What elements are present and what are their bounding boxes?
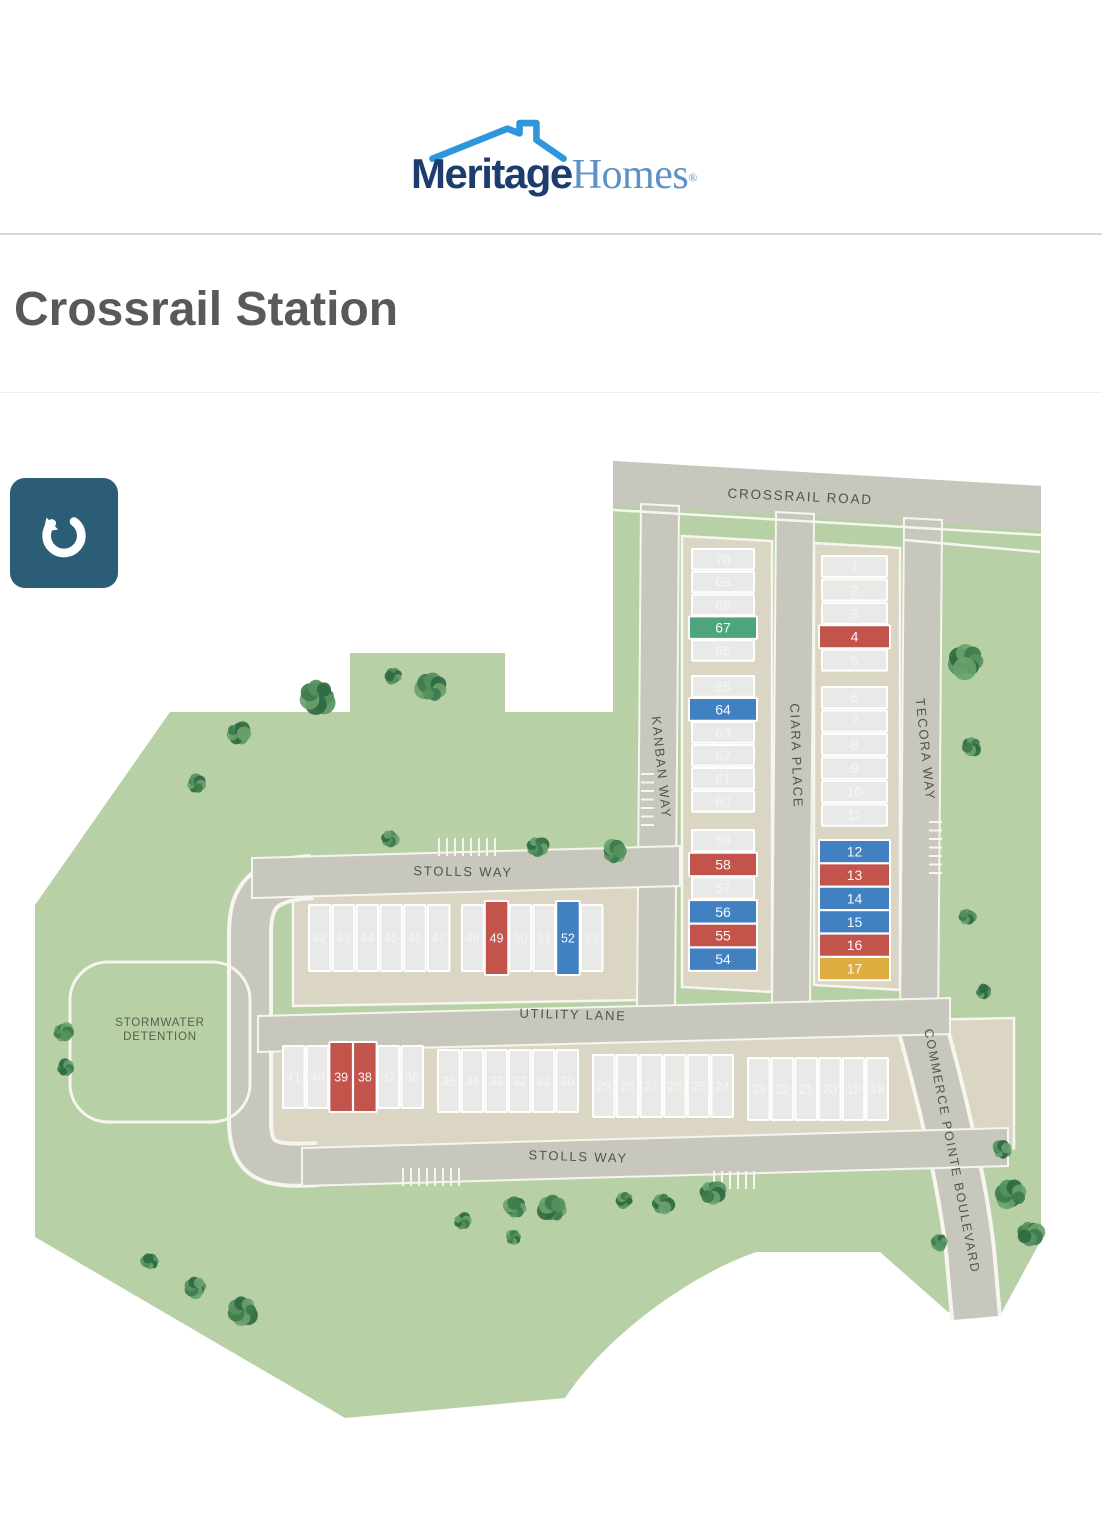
lot-number: 23 xyxy=(752,1083,766,1097)
lot-number: 36 xyxy=(405,1071,419,1085)
lot-58[interactable]: 58 xyxy=(689,853,757,876)
lot-20[interactable]: 20 xyxy=(819,1058,841,1120)
lot-number: 55 xyxy=(715,928,731,944)
lot-number: 24 xyxy=(715,1080,729,1094)
lot-number: 11 xyxy=(847,807,862,823)
lot-number: 53 xyxy=(585,932,599,946)
lot-number: 20 xyxy=(823,1083,837,1097)
lot-number: 52 xyxy=(561,932,575,946)
tree xyxy=(300,680,336,715)
lot-number: 62 xyxy=(715,747,731,763)
lot-44[interactable]: 44 xyxy=(357,905,379,971)
lot-number: 8 xyxy=(851,737,859,753)
lot-number: 31 xyxy=(537,1075,551,1089)
lot-65[interactable]: 65 xyxy=(692,676,754,697)
lot-64[interactable]: 64 xyxy=(689,698,757,721)
lot-number: 4 xyxy=(851,629,859,645)
lot-number: 17 xyxy=(847,961,863,977)
lot-number: 1 xyxy=(851,559,859,575)
lot-16[interactable]: 16 xyxy=(819,934,890,957)
lot-number: 49 xyxy=(490,932,504,946)
lot-53[interactable]: 53 xyxy=(581,905,603,971)
lot-number: 35 xyxy=(442,1075,456,1089)
site-plan-map: 7069686766656463626160595857565554123456… xyxy=(0,0,1102,1536)
lot-number: 22 xyxy=(775,1083,789,1097)
lot-51[interactable]: 51 xyxy=(533,905,555,971)
lot-number: 40 xyxy=(310,1071,324,1085)
lot-number: 37 xyxy=(382,1071,396,1085)
lot-68[interactable]: 68 xyxy=(692,595,754,616)
lot-15[interactable]: 15 xyxy=(819,910,890,933)
lot-number: 54 xyxy=(715,951,731,967)
lot-17[interactable]: 17 xyxy=(819,957,890,980)
lot-49[interactable]: 49 xyxy=(485,901,509,975)
lot-number: 67 xyxy=(715,620,731,636)
lot-6[interactable]: 6 xyxy=(822,687,887,708)
lot-number: 19 xyxy=(847,1083,861,1097)
lot-5[interactable]: 5 xyxy=(822,650,887,671)
lot-number: 69 xyxy=(715,574,731,590)
lot-10[interactable]: 10 xyxy=(822,781,887,802)
lot-4[interactable]: 4 xyxy=(819,625,890,648)
lot-number: 30 xyxy=(560,1075,574,1089)
lot-26[interactable]: 26 xyxy=(664,1055,686,1117)
lot-number: 59 xyxy=(715,833,731,849)
lot-31[interactable]: 31 xyxy=(533,1050,555,1112)
page: MeritageHomes® Crossrail Station xyxy=(0,0,1102,1536)
lot-12[interactable]: 12 xyxy=(819,840,890,863)
lot-number: 60 xyxy=(715,793,731,809)
lot-number: 7 xyxy=(851,713,859,729)
lot-number: 6 xyxy=(851,690,859,706)
lot-41[interactable]: 41 xyxy=(283,1046,305,1108)
lot-30[interactable]: 30 xyxy=(557,1050,579,1112)
lot-number: 48 xyxy=(466,932,480,946)
rotate-ccw-icon xyxy=(32,501,96,565)
lot-number: 41 xyxy=(287,1071,301,1085)
lot-70[interactable]: 70 xyxy=(692,549,754,570)
lot-60[interactable]: 60 xyxy=(692,791,754,812)
lot-27[interactable]: 27 xyxy=(640,1055,662,1117)
lot-number: 16 xyxy=(847,937,863,953)
lot-42[interactable]: 42 xyxy=(309,905,331,971)
lot-22[interactable]: 22 xyxy=(772,1058,794,1120)
lot-number: 27 xyxy=(644,1080,658,1094)
lot-24[interactable]: 24 xyxy=(712,1055,734,1117)
lot-67[interactable]: 67 xyxy=(689,616,757,639)
lot-34[interactable]: 34 xyxy=(462,1050,484,1112)
lot-number: 64 xyxy=(715,701,731,717)
lot-number: 15 xyxy=(847,914,863,930)
lot-25[interactable]: 25 xyxy=(688,1055,710,1117)
lot-number: 26 xyxy=(668,1080,682,1094)
lot-23[interactable]: 23 xyxy=(748,1058,770,1120)
lot-number: 68 xyxy=(715,597,731,613)
lot-number: 14 xyxy=(847,890,863,906)
lot-36[interactable]: 36 xyxy=(402,1046,424,1108)
lot-number: 32 xyxy=(513,1075,527,1089)
lot-47[interactable]: 47 xyxy=(428,905,450,971)
lot-number: 13 xyxy=(847,867,863,883)
lot-46[interactable]: 46 xyxy=(404,905,426,971)
lot-number: 34 xyxy=(465,1075,479,1089)
lot-14[interactable]: 14 xyxy=(819,887,890,910)
lot-number: 47 xyxy=(432,932,446,946)
lot-number: 2 xyxy=(851,582,859,598)
lot-number: 61 xyxy=(715,770,731,786)
lot-number: 46 xyxy=(408,932,422,946)
lot-3[interactable]: 3 xyxy=(822,603,887,624)
lot-number: 18 xyxy=(870,1083,884,1097)
lot-number: 42 xyxy=(313,932,327,946)
lot-number: 29 xyxy=(597,1080,611,1094)
lot-29[interactable]: 29 xyxy=(593,1055,615,1117)
lot-11[interactable]: 11 xyxy=(822,805,887,826)
lot-number: 38 xyxy=(358,1071,372,1085)
lot-40[interactable]: 40 xyxy=(307,1046,329,1108)
lot-21[interactable]: 21 xyxy=(795,1058,817,1120)
lot-61[interactable]: 61 xyxy=(692,768,754,789)
street-label-stolls-way: STOLLS WAY xyxy=(413,863,513,880)
lot-45[interactable]: 45 xyxy=(380,905,402,971)
lot-number: 3 xyxy=(851,605,859,621)
lot-9[interactable]: 9 xyxy=(822,758,887,779)
lot-32[interactable]: 32 xyxy=(509,1050,530,1112)
lot-8[interactable]: 8 xyxy=(822,734,887,755)
lot-28[interactable]: 28 xyxy=(617,1055,639,1117)
lot-number: 21 xyxy=(799,1083,813,1097)
lot-number: 10 xyxy=(847,784,863,800)
lot-62[interactable]: 62 xyxy=(692,745,754,766)
lot-number: 57 xyxy=(715,880,731,896)
lot-57[interactable]: 57 xyxy=(692,877,754,898)
lot-number: 44 xyxy=(360,932,374,946)
lot-number: 56 xyxy=(715,904,731,920)
lot-number: 66 xyxy=(715,642,731,658)
reset-view-button[interactable] xyxy=(10,478,118,588)
lot-18[interactable]: 18 xyxy=(867,1058,889,1120)
lot-number: 28 xyxy=(620,1080,634,1094)
lot-number: 65 xyxy=(715,678,731,694)
lot-number: 63 xyxy=(715,724,731,740)
lot-number: 39 xyxy=(334,1071,348,1085)
lot-number: 43 xyxy=(337,932,351,946)
lot-35[interactable]: 35 xyxy=(438,1050,460,1112)
lot-number: 51 xyxy=(537,932,551,946)
lot-50[interactable]: 50 xyxy=(510,905,531,971)
lot-54[interactable]: 54 xyxy=(689,948,757,971)
lot-63[interactable]: 63 xyxy=(692,722,754,743)
lot-55[interactable]: 55 xyxy=(689,924,757,947)
lot-56[interactable]: 56 xyxy=(689,900,757,923)
lot-number: 12 xyxy=(847,844,863,860)
lot-7[interactable]: 7 xyxy=(822,711,887,732)
lot-13[interactable]: 13 xyxy=(819,863,890,886)
lot-33[interactable]: 33 xyxy=(485,1050,507,1112)
lot-number: 5 xyxy=(851,652,859,668)
lot-number: 9 xyxy=(851,760,859,776)
lot-number: 70 xyxy=(715,551,731,567)
lot-number: 50 xyxy=(513,932,527,946)
lot-43[interactable]: 43 xyxy=(333,905,355,971)
lot-number: 25 xyxy=(692,1080,706,1094)
lot-number: 33 xyxy=(489,1075,503,1089)
lot-59[interactable]: 59 xyxy=(692,830,754,851)
lot-number: 45 xyxy=(384,932,398,946)
street-label-utility-lane: UTILITY LANE xyxy=(519,1006,627,1024)
lot-1[interactable]: 1 xyxy=(822,556,887,577)
lot-2[interactable]: 2 xyxy=(822,579,887,600)
lot-52[interactable]: 52 xyxy=(556,901,580,975)
lot-69[interactable]: 69 xyxy=(692,572,754,593)
lot-48[interactable]: 48 xyxy=(462,905,484,971)
lot-number: 58 xyxy=(715,856,731,872)
lot-19[interactable]: 19 xyxy=(843,1058,865,1120)
lot-37[interactable]: 37 xyxy=(378,1046,400,1108)
lot-38[interactable]: 38 xyxy=(353,1042,377,1112)
lot-39[interactable]: 39 xyxy=(329,1042,353,1112)
lot-66[interactable]: 66 xyxy=(692,640,754,661)
